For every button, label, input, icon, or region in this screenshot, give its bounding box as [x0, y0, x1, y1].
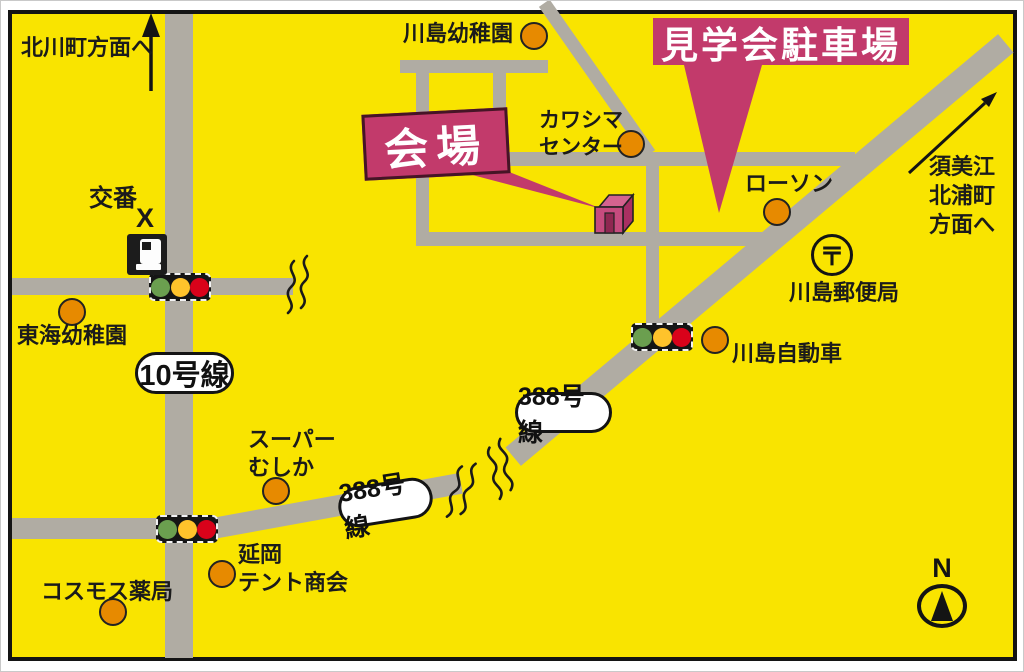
road-venue-horizontal [416, 232, 762, 246]
poi-label-super-mushika: スーパー むしか [248, 426, 336, 482]
traffic-light-icon [149, 273, 211, 301]
venue-label: 会場 [382, 109, 489, 178]
compass-ring [917, 584, 967, 628]
signal-yellow [653, 328, 672, 347]
poi-label-kawashima-motors: 川島自動車 [732, 340, 842, 368]
parking-banner: 見学会駐車場 [653, 18, 909, 65]
police-box-icon-base [136, 264, 161, 270]
compass-needle-icon [931, 591, 953, 621]
venue-cube-icon [593, 191, 637, 237]
poi-label-nobeoka-tent: 延岡 テント商会 [238, 541, 348, 597]
post-office-icon: 〒 [811, 234, 853, 276]
signal-red [197, 520, 216, 539]
compass-north-label: N [913, 555, 971, 582]
police-box-icon-screen [142, 242, 151, 250]
road-route10-vertical [165, 14, 193, 658]
poi-dot-kawashima-motors [701, 326, 729, 354]
map-border [8, 10, 1017, 661]
parking-label: 見学会駐車場 [661, 15, 901, 69]
signal-green [633, 328, 652, 347]
poi-label-tokai-kindergarten: 東海幼稚園 [17, 322, 127, 350]
signal-green [151, 278, 170, 297]
venue-callout: 会場 [361, 107, 510, 181]
traffic-light-icon [156, 515, 218, 543]
signal-yellow [178, 520, 197, 539]
poi-dot-kawashima-kindergarten [520, 22, 548, 50]
poi-dot-lawson [763, 198, 791, 226]
road-vertical-f [646, 152, 659, 344]
poi-dot-nobeoka-tent [208, 560, 236, 588]
compass-rose: N [913, 555, 971, 628]
route-sign-388-lower: 388号線 [335, 475, 435, 530]
post-office-symbol: 〒 [819, 237, 844, 273]
route-sign-388-upper: 388号線 [515, 392, 612, 433]
direction-northeast-label: 須美江 北浦町 方面へ [929, 152, 995, 239]
signal-yellow [171, 278, 190, 297]
parking-pointer [681, 65, 763, 215]
direction-north-label: 北川町方面へ [21, 34, 153, 62]
police-box-label: 交番 [89, 184, 137, 215]
signal-red [190, 278, 209, 297]
poi-label-cosmos-pharmacy: コスモス薬局 [41, 578, 173, 606]
road-break-icon [282, 253, 316, 313]
poi-label-kawashima-kindergarten: 川島幼稚園 [403, 20, 513, 48]
traffic-light-icon [631, 323, 693, 351]
map: 北川町方面へ 須美江 北浦町 方面へ 交番 X 川島幼稚園 カワシマ センター … [0, 0, 1024, 672]
route-sign-10: 10号線 [135, 352, 234, 394]
police-box-icon [127, 234, 167, 275]
signal-green [158, 520, 177, 539]
police-box-x-mark: X [136, 201, 154, 236]
post-office-label: 川島郵便局 [789, 279, 899, 307]
signal-red [672, 328, 691, 347]
